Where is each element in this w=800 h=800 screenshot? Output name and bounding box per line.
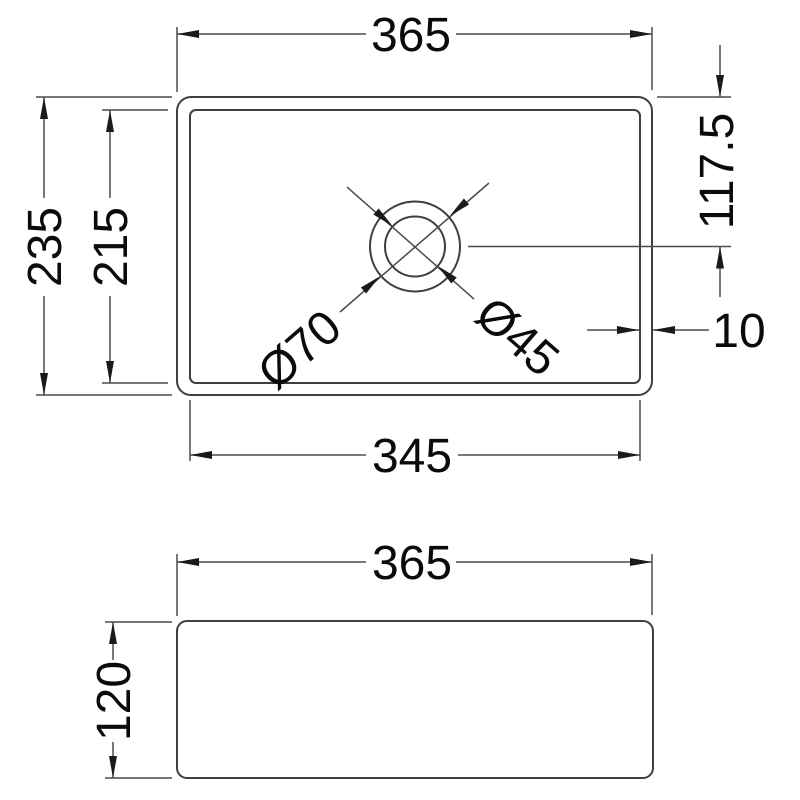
arrow-diagonal-icon — [450, 199, 469, 216]
arrow-up-icon — [109, 622, 117, 644]
dim-label-overall-width: 365 — [371, 9, 451, 62]
dim-bowl-depth: 215 — [85, 110, 168, 383]
dim-label-bowl-width: 345 — [372, 430, 452, 483]
arrow-right-icon — [617, 326, 639, 334]
dim-bowl-width: 345 — [190, 400, 640, 483]
arrow-up-icon — [40, 97, 48, 119]
arrow-down-icon — [716, 75, 724, 97]
arrow-up-icon — [106, 110, 114, 132]
dim-label-hole-outer-diameter: Ø70 — [248, 300, 351, 400]
dim-wall-thickness: 10 — [587, 305, 766, 358]
dim-label-bowl-depth: 215 — [85, 207, 138, 287]
dim-label-wall-thickness: 10 — [712, 305, 765, 358]
dim-side-overall-height: 120 — [88, 622, 172, 778]
technical-drawing-canvas: 365 235 215 — [0, 0, 800, 800]
arrow-left-icon — [190, 451, 212, 459]
side-view: 365 120 — [88, 537, 653, 778]
arrow-right-icon — [630, 558, 652, 566]
arrow-left-icon — [177, 558, 199, 566]
top-view: 365 235 215 — [19, 9, 766, 483]
arrow-down-icon — [40, 373, 48, 395]
elevation-outline — [177, 621, 653, 778]
dim-label-side-overall-width: 365 — [372, 537, 452, 590]
dim-overall-width: 365 — [177, 9, 652, 92]
dim-side-overall-width: 365 — [177, 537, 652, 616]
dim-hole-outer-diameter: Ø70 — [248, 183, 489, 400]
dim-label-hole-center-offset: 117.5 — [691, 113, 744, 230]
arrow-down-icon — [109, 756, 117, 778]
arrow-up-icon — [716, 247, 724, 269]
dim-label-overall-depth: 235 — [19, 207, 72, 287]
dim-label-hole-inner-diameter: Ø45 — [465, 287, 568, 387]
dim-hole-inner-diameter: Ø45 — [347, 187, 569, 387]
sink-dimension-drawing: 365 235 215 — [0, 0, 800, 800]
arrow-right-icon — [630, 30, 652, 38]
dim-hole-center-offset: 117.5 — [468, 45, 744, 297]
arrow-right-icon — [618, 451, 640, 459]
arrow-left-icon — [653, 326, 675, 334]
arrow-down-icon — [106, 361, 114, 383]
arrow-left-icon — [177, 30, 199, 38]
dim-label-side-overall-height: 120 — [88, 661, 141, 741]
